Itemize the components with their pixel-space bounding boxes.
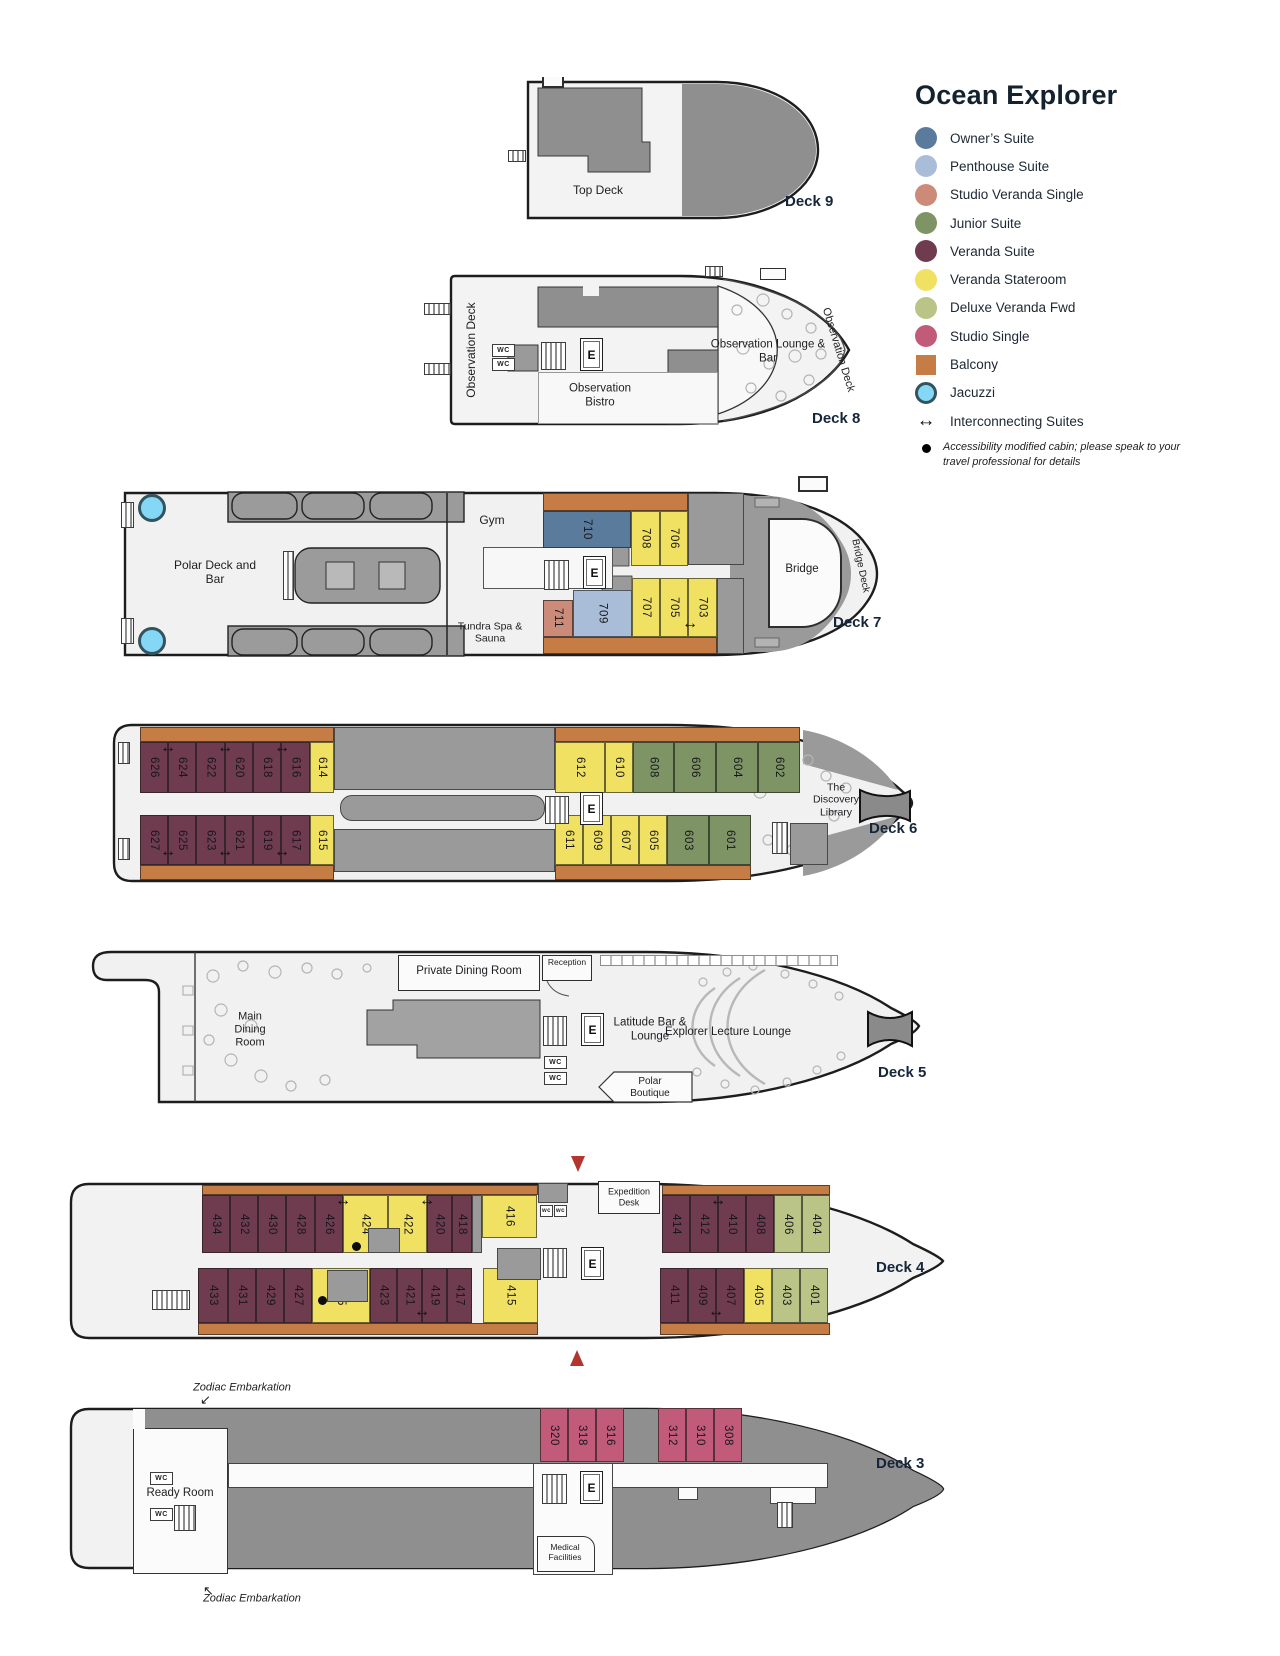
balcony-swatch-icon (916, 355, 936, 375)
studio_veranda_single-swatch-icon (915, 184, 937, 206)
legend-title: Ocean Explorer (915, 80, 1245, 111)
deck8-hull (425, 262, 865, 434)
deluxe_veranda_fwd-swatch-icon (915, 297, 937, 319)
legend-item-label: Veranda Stateroom (950, 272, 1066, 287)
jacuzzi-swatch-icon (915, 382, 937, 404)
legend-item: Jacuzzi (915, 379, 1245, 407)
deck3-hull (65, 1405, 945, 1583)
legend-item: Penthouse Suite (915, 152, 1245, 180)
deck5-hull (85, 948, 945, 1110)
studio_single-swatch-icon (915, 325, 937, 347)
veranda_suite-swatch-icon (915, 240, 937, 262)
legend-items: Owner’s SuitePenthouse SuiteStudio Veran… (915, 124, 1245, 435)
legend-note: Accessibility modified cabin; please spe… (915, 440, 1245, 470)
legend-item-label: Deluxe Veranda Fwd (950, 300, 1075, 315)
embarkation-arrow-icon (570, 1350, 584, 1366)
legend-item: Veranda Suite (915, 237, 1245, 265)
legend-item-label: Studio Veranda Single (950, 187, 1084, 202)
legend-item-label: Balcony (950, 357, 998, 372)
zodiac-arrow-icon: ↖ (203, 1583, 214, 1599)
veranda_stateroom-swatch-icon (915, 269, 937, 291)
accessibility-dot-icon (922, 444, 931, 453)
accessibility-note-text: Accessibility modified cabin; please spe… (943, 440, 1181, 470)
legend-item-label: Studio Single (950, 329, 1030, 344)
deck7-hull (115, 488, 883, 660)
legend-item-label: Interconnecting Suites (950, 414, 1084, 429)
legend-item: Veranda Stateroom (915, 265, 1245, 293)
embarkation-arrow-icon (571, 1156, 585, 1172)
interconnect-arrow-icon: ↔ (915, 410, 937, 432)
legend-item: Junior Suite (915, 209, 1245, 237)
legend-item-label: Junior Suite (950, 216, 1021, 231)
deck4-hull (65, 1180, 945, 1340)
legend: Ocean Explorer Owner’s SuitePenthouse Su… (915, 80, 1245, 470)
legend-item: ↔Interconnecting Suites (915, 407, 1245, 435)
deck-plan-page: 7107087067117097077057036266246226206186… (0, 0, 1280, 1656)
legend-item: Owner’s Suite (915, 124, 1245, 152)
legend-item: Studio Veranda Single (915, 181, 1245, 209)
legend-item: Studio Single (915, 322, 1245, 350)
label-zodiac-bottom: Zodiac Embarkation (203, 1593, 301, 1606)
legend-item-label: Owner’s Suite (950, 131, 1034, 146)
deck9-hull (522, 76, 822, 224)
legend-item-label: Jacuzzi (950, 385, 995, 400)
deck6-hull (108, 720, 920, 892)
legend-item-label: Veranda Suite (950, 244, 1035, 259)
legend-item: Balcony (915, 350, 1245, 378)
legend-item: Deluxe Veranda Fwd (915, 294, 1245, 322)
owner-swatch-icon (915, 127, 937, 149)
penthouse-swatch-icon (915, 155, 937, 177)
junior-swatch-icon (915, 212, 937, 234)
legend-item-label: Penthouse Suite (950, 159, 1049, 174)
label-zodiac-top: Zodiac Embarkation (193, 1382, 291, 1395)
